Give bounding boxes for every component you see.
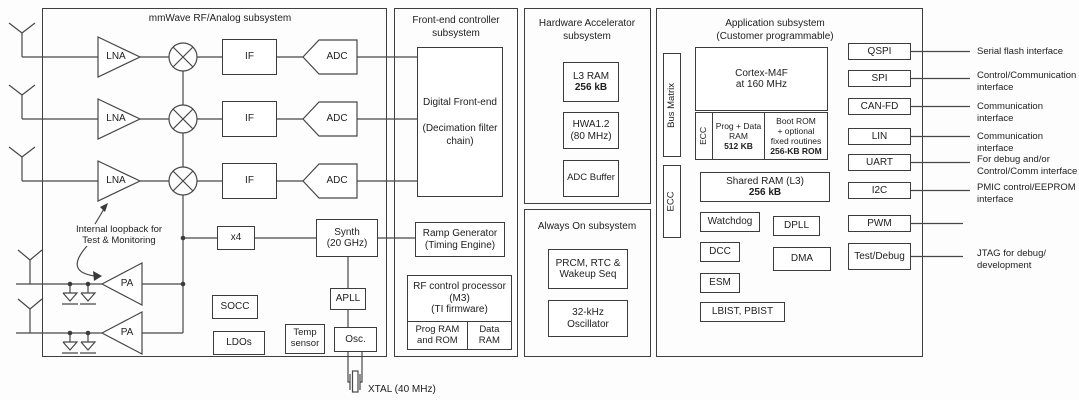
osc32k-block: 32-kHz Oscillator <box>548 300 628 337</box>
esm-block: ESM <box>700 273 740 293</box>
arrowhead <box>100 203 108 212</box>
if-block: IF <box>222 101 277 137</box>
adc-label: ADC <box>317 51 357 62</box>
bus-matrix-label: Bus Matrix <box>667 83 678 128</box>
l3-ram-block: L3 RAM 256 kB <box>563 62 619 102</box>
x4-multiplier-block: x4 <box>217 226 255 250</box>
adc-label: ADC <box>317 175 357 186</box>
tx-pad-icon <box>80 333 96 353</box>
boot-rom-name: Boot ROM + optional fixed routines <box>771 116 822 146</box>
boot-rom-size: 256-KB ROM <box>770 146 821 156</box>
rf-processor-label: RF control processor (M3) (TI firmware) <box>413 276 506 321</box>
iface-desc-lin: Communication interface <box>977 131 1079 155</box>
spi-block: SPI <box>848 70 911 87</box>
junction-dot <box>86 282 91 287</box>
dma-block: DMA <box>773 247 831 271</box>
junction-dot <box>181 282 186 287</box>
xtal-label: XTAL (40 MHz) <box>368 384 448 395</box>
canfd-block: CAN-FD <box>848 98 911 115</box>
junction-dot <box>86 331 91 336</box>
rx-antenna-icon <box>9 23 35 57</box>
mixer-icon <box>169 43 197 71</box>
ecc-side-block: ECC <box>663 165 681 238</box>
tx-antenna-icon <box>18 299 42 333</box>
pa-label: PA <box>114 327 140 338</box>
tx-pad-icon <box>62 333 78 353</box>
mmwave-title: mmWave RF/Analog subsystem <box>120 13 320 26</box>
arrowhead <box>93 271 102 281</box>
lbist-pbist-block: LBIST, PBIST <box>700 302 785 322</box>
hwa-title: Hardware Accelerator subsystem <box>527 18 647 43</box>
pa-label: PA <box>114 278 140 289</box>
test-debug-block: Test/Debug <box>848 243 911 270</box>
loopback-arrow <box>95 209 104 224</box>
boot-rom-cell: Boot ROM + optional fixed routines 256-K… <box>765 113 827 159</box>
frontend-title: Front-end controller subsystem <box>396 15 516 40</box>
prog-data-ram-cell: Prog + Data RAM 512 KB <box>713 113 765 159</box>
iface-desc-canfd: Communication interface <box>977 101 1079 125</box>
lna-label: LNA <box>99 113 133 124</box>
l3-ram-size: 256 kB <box>575 82 607 94</box>
dpll-block: DPLL <box>773 216 820 236</box>
prog-data-ram-name: Prog + Data RAM <box>716 121 762 141</box>
shared-ram-size: 256 kB <box>749 187 781 199</box>
qspi-block: QSPI <box>848 43 911 60</box>
rf-control-processor-block: RF control processor (M3) (TI firmware) … <box>407 275 512 350</box>
i2c-block: I2C <box>848 182 911 199</box>
l3-ram-name: L3 RAM <box>573 71 609 83</box>
digital-front-end-block: Digital Front-end (Decimation filter cha… <box>417 47 503 197</box>
ldos-block: LDOs <box>213 331 265 355</box>
lna-label: LNA <box>99 51 133 62</box>
uart-block: UART <box>848 154 911 171</box>
dcc-block: DCC <box>700 242 740 262</box>
ecc-side-label: ECC <box>667 191 678 211</box>
junction-dot <box>68 331 73 336</box>
synth-block: Synth (20 GHz) <box>316 219 378 257</box>
iface-desc-qspi: Serial flash interface <box>977 46 1079 58</box>
socc-block: SOCC <box>212 295 258 319</box>
shared-ram-name: Shared RAM (L3) <box>726 176 804 188</box>
soc-block-diagram: mmWave RF/Analog subsystem Front-end con… <box>0 0 1079 400</box>
apll-block: APLL <box>330 288 366 310</box>
alwayson-title: Always On subsystem <box>527 221 647 234</box>
junction-dot <box>181 236 186 241</box>
watchdog-block: Watchdog <box>700 212 760 232</box>
prog-data-ram-size: 512 KB <box>724 141 753 151</box>
rx-antenna-icon <box>9 85 35 119</box>
iface-desc-spi: Control/Communication interface <box>977 70 1079 94</box>
adc-buffer-block: ADC Buffer <box>563 160 619 197</box>
data-ram-block: Data RAM <box>468 322 511 349</box>
prcm-rtc-block: PRCM, RTC & Wakeup Seq <box>548 249 628 289</box>
osc-block: Osc. <box>334 327 377 352</box>
iface-desc-uart: For debug and/or Control/Comm interface <box>977 154 1079 178</box>
if-block: IF <box>222 39 277 75</box>
loopback-arrow <box>77 246 95 276</box>
tx-antenna-icon <box>18 250 42 284</box>
pwm-block: PWM <box>848 215 911 232</box>
ecc-ram-cell: ECC <box>696 113 713 159</box>
junction-dot <box>68 282 73 287</box>
hwa-core-block: HWA1.2 (80 MHz) <box>563 112 619 149</box>
if-block: IF <box>222 163 277 199</box>
tx-pad-icon <box>80 284 96 304</box>
iface-desc-jtag: JTAG for debug/ development <box>977 248 1079 272</box>
ramp-generator-block: Ramp Generator (Timing Engine) <box>415 222 505 257</box>
temp-sensor-block: Temp sensor <box>285 324 325 354</box>
loopback-note: Internal loopback for Test & Monitoring <box>64 224 174 247</box>
ecc-ram-label: ECC <box>699 127 709 145</box>
app-ram-row: ECC Prog + Data RAM 512 KB Boot ROM + op… <box>695 112 828 160</box>
bus-matrix-block: Bus Matrix <box>663 53 681 157</box>
lna-label: LNA <box>99 175 133 186</box>
cortex-m4f-block: Cortex-M4F at 160 MHz <box>695 47 828 111</box>
wiring-layer <box>0 0 1079 400</box>
iface-desc-i2c: PMIC control/EEPROM interface <box>977 182 1079 206</box>
mixer-icon <box>169 167 197 195</box>
tx-pad-icon <box>62 284 78 304</box>
prog-ram-rom-block: Prog RAM and ROM <box>408 322 468 349</box>
shared-ram-block: Shared RAM (L3) 256 kB <box>700 172 830 202</box>
lin-block: LIN <box>848 128 911 145</box>
adc-label: ADC <box>317 113 357 124</box>
xtal-icon <box>348 352 362 392</box>
app-title: Application subsystem (Customer programm… <box>665 18 885 43</box>
mixer-icon <box>169 105 197 133</box>
rx-antenna-icon <box>9 147 35 181</box>
